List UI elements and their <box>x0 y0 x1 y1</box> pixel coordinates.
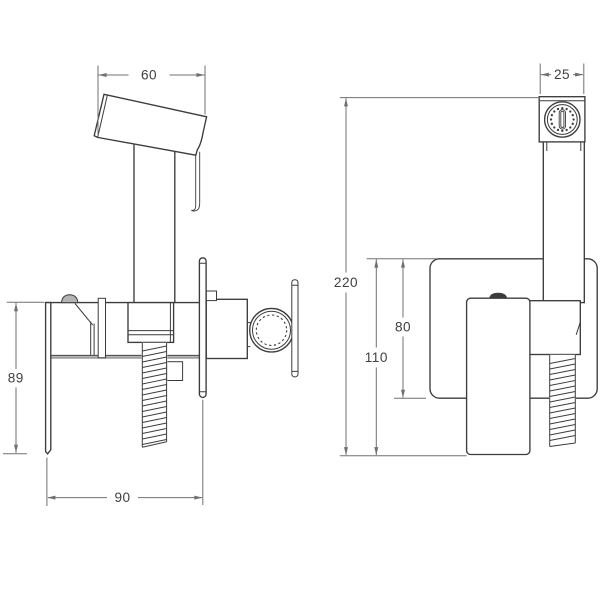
dimension-overall-height: 220 <box>334 98 358 455</box>
drawing-canvas: 60 89 90 <box>0 0 600 600</box>
mixer-lever <box>46 303 51 454</box>
sprayer-head-side <box>94 94 206 155</box>
dimension-head-depth: 25 <box>540 64 584 95</box>
dim-label-80: 80 <box>395 319 411 334</box>
supply-elbow <box>250 308 294 352</box>
dimension-plate-height: 80 <box>395 259 411 398</box>
cartridge-block <box>128 303 174 343</box>
dim-label-89: 89 <box>8 370 24 385</box>
sprayer-handle-front <box>543 142 584 303</box>
holder-bracket <box>529 301 580 355</box>
valve-body <box>467 298 530 454</box>
sprayer-handle-side <box>134 144 175 303</box>
dim-label-60: 60 <box>141 67 157 82</box>
sprayer-head-front <box>539 97 585 142</box>
dimension-body-depth: 90 <box>47 400 203 506</box>
lever-pivot-dome <box>62 295 78 303</box>
front-view: 25 220 110 80 <box>334 64 597 456</box>
wall-plate-edge <box>199 258 206 398</box>
body-flange-ring <box>98 298 105 358</box>
dim-label-110: 110 <box>365 350 388 365</box>
dim-label-220: 220 <box>334 275 358 290</box>
shower-hose-side <box>142 343 168 448</box>
lever-arm-edge <box>75 304 93 326</box>
hose-nut <box>167 362 183 381</box>
sprayer-nozzle-tip <box>191 152 199 211</box>
shower-hose-front <box>549 355 576 447</box>
inwall-body-block <box>206 299 247 358</box>
side-view: 60 89 90 <box>3 66 298 507</box>
dimension-body-height: 110 <box>365 259 388 455</box>
lever-neck-lines <box>91 322 94 356</box>
dim-label-90: 90 <box>114 490 130 505</box>
dimension-lever-length: 89 <box>3 302 45 454</box>
technical-drawing: 60 89 90 <box>0 0 600 600</box>
inwall-fitting-boss <box>206 291 216 301</box>
dim-label-25: 25 <box>554 67 570 82</box>
mounting-stud <box>292 280 298 377</box>
